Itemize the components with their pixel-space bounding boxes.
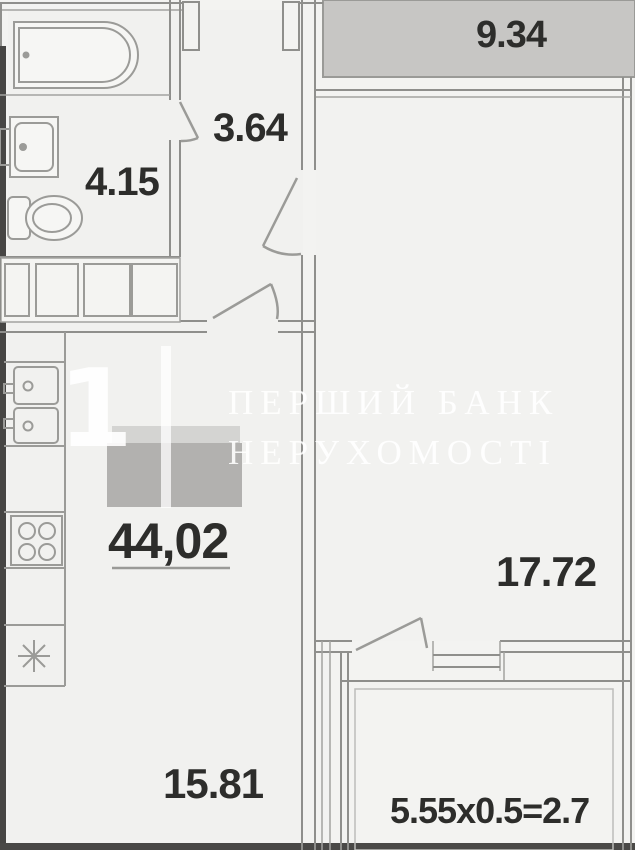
floor-plan: 1 ПЕРШИЙ БАНК НЕРУХОМОСТІ 9.34 3.64 4.15… bbox=[0, 0, 635, 850]
label-hallway-area: 3.64 bbox=[213, 106, 289, 150]
bathtub bbox=[14, 22, 138, 88]
label-bedroom-area: 17.72 bbox=[496, 548, 596, 595]
bottom-outer-wall bbox=[0, 843, 635, 850]
left-outer-wall bbox=[0, 46, 6, 850]
hall-closet-row bbox=[1, 258, 180, 322]
entrance-jamb-right bbox=[283, 2, 299, 50]
toilet-bowl bbox=[26, 196, 82, 240]
watermark-line2: НЕРУХОМОСТІ bbox=[228, 433, 557, 472]
floor-plan-drawing: 1 ПЕРШИЙ БАНК НЕРУХОМОСТІ 9.34 3.64 4.15… bbox=[0, 0, 635, 850]
washbasin-faucet-icon bbox=[19, 143, 27, 151]
watermark-big-digit: 1 bbox=[58, 347, 133, 472]
entrance-jamb-left bbox=[183, 2, 199, 50]
bathtub-faucet-icon bbox=[23, 52, 30, 59]
label-balcony-calc: 5.55x0.5=2.7 bbox=[390, 790, 589, 831]
label-bathroom-area: 4.15 bbox=[85, 160, 160, 204]
label-loggia-area: 9.34 bbox=[476, 14, 547, 56]
watermark-line1: ПЕРШИЙ БАНК bbox=[228, 383, 559, 422]
label-total-area: 44,02 bbox=[108, 513, 228, 569]
watermark-stripe bbox=[161, 346, 171, 508]
label-kitchen-living-area: 15.81 bbox=[163, 760, 264, 807]
